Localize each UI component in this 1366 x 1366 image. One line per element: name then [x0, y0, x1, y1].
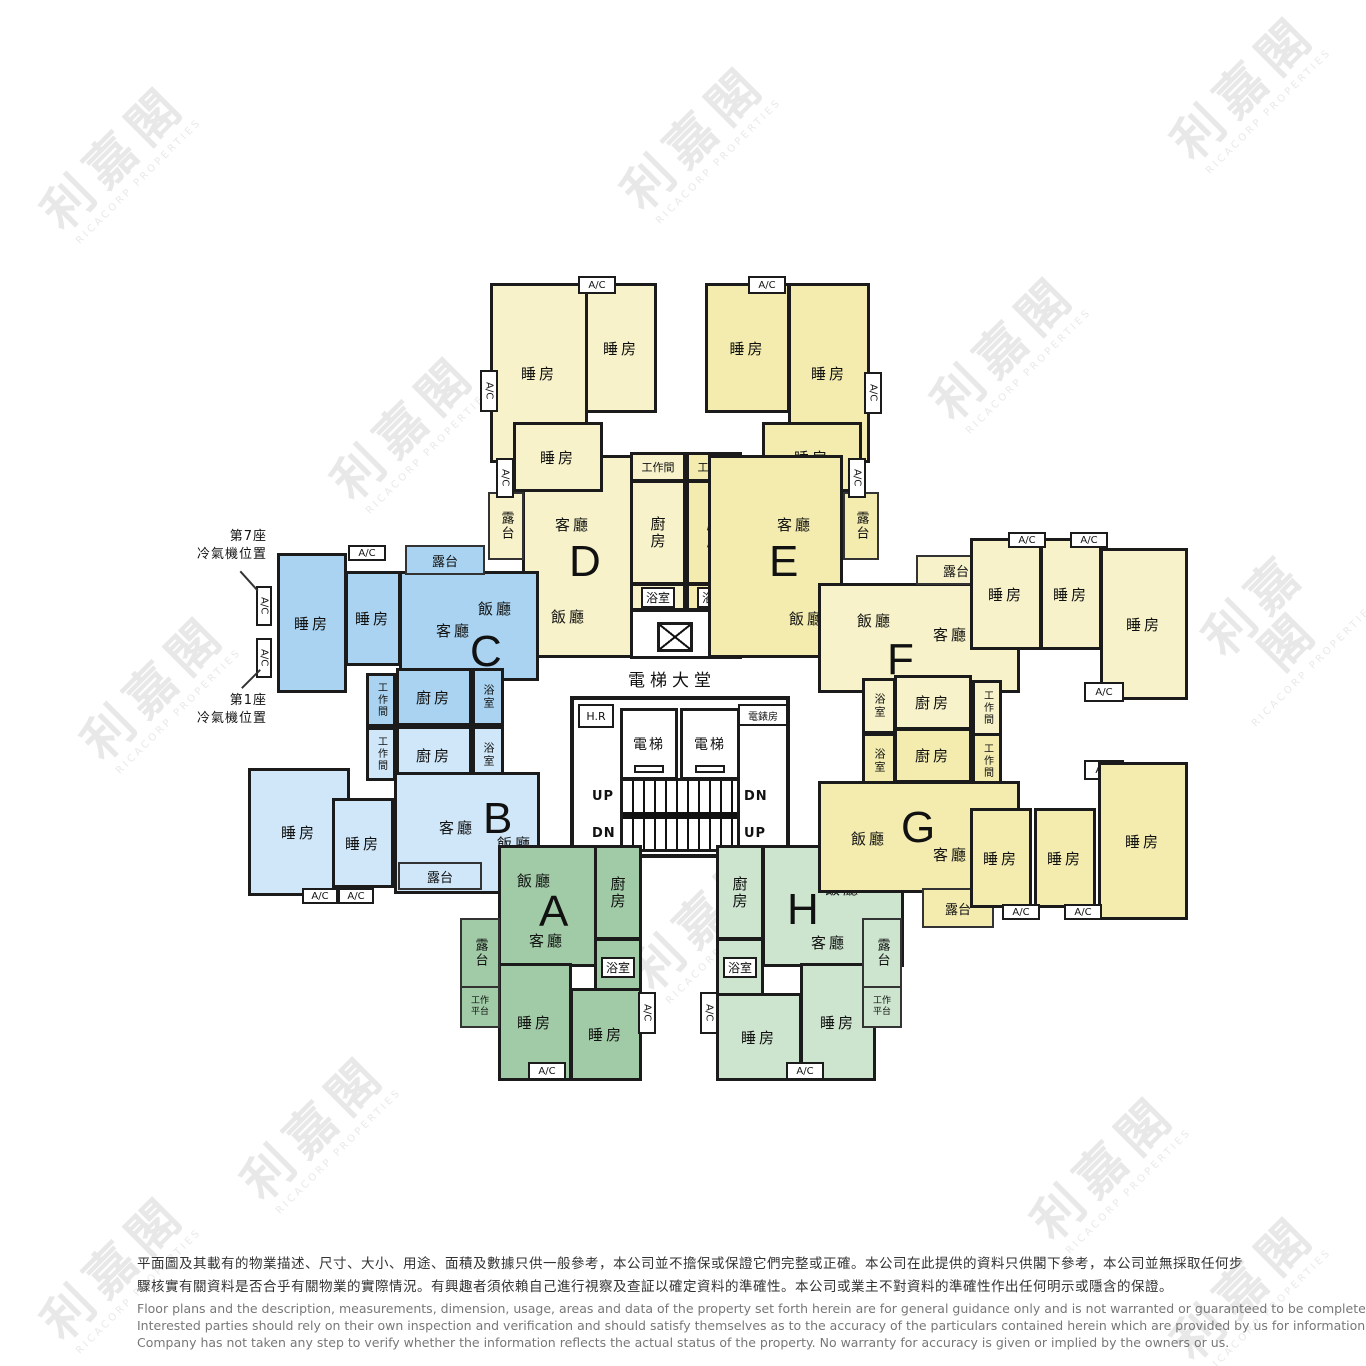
unit-letter-g: G: [901, 806, 935, 850]
lift-1: 電梯: [620, 708, 678, 780]
unit-f-utility: 工作間: [972, 680, 1002, 736]
lift-2: 電梯: [680, 708, 740, 780]
disclaimer-en-line1: Floor plans and the description, measure…: [137, 1301, 1366, 1316]
unit-e-balcony: 露台: [843, 492, 879, 560]
hose-reel-box: H.R: [578, 704, 614, 728]
lift-door: [634, 765, 664, 773]
unit-a-bedroom-2: 睡房: [570, 988, 642, 1081]
ac-box: A/C: [786, 1062, 824, 1080]
tower7-ac-annotation: 第7座 冷氣機位置: [155, 528, 267, 563]
stairs-down-label: DN: [744, 789, 768, 804]
room-label-living: 客廳: [555, 514, 591, 535]
unit-d-bedroom-2: 睡房: [585, 283, 657, 413]
room-label-living: 客廳: [436, 620, 472, 641]
stairs-up-label: UP: [744, 826, 766, 841]
unit-d-bathroom: 浴室: [630, 583, 686, 611]
stairs-down-label: DN: [592, 826, 616, 841]
ac-box: A/C: [1008, 532, 1046, 548]
unit-a-balcony: 露台: [460, 918, 500, 988]
floor-plan-page: 利嘉閣RICACORP PROPERTIES 利嘉閣RICACORP PROPE…: [0, 0, 1366, 1366]
ac-box: A/C: [748, 276, 786, 294]
unit-d-kitchen: 廚房: [630, 480, 686, 585]
unit-c-bedroom-1: 睡房: [277, 553, 347, 693]
meter-room-box: 電錶房: [738, 704, 788, 726]
room-label-dining: 飯廳: [857, 610, 893, 631]
stairs-up-label: UP: [592, 789, 614, 804]
room-label-living: 客廳: [777, 514, 813, 535]
unit-f-kitchen: 廚房: [894, 675, 972, 730]
ac-box: A/C: [480, 370, 498, 412]
room-label-living: 客廳: [439, 817, 475, 838]
ricacorp-logo-watermark: 利嘉閣RICACORP PROPERTIES: [33, 1186, 206, 1359]
ac-box: A/C: [528, 1062, 566, 1080]
room-label-dining: 飯廳: [478, 598, 514, 619]
ricacorp-logo-watermark: 利嘉閣RICACORP PROPERTIES: [33, 76, 206, 249]
ricacorp-logo-watermark: 利嘉閣RICACORP PROPERTIES: [323, 346, 496, 519]
unit-g-kitchen: 廚房: [894, 728, 972, 783]
staircase: [620, 778, 740, 852]
unit-h-bathroom: 浴室: [716, 938, 764, 996]
unit-g-bedroom-1: 睡房: [970, 808, 1032, 908]
stair-landing: [623, 812, 737, 819]
room-label-living: 客廳: [933, 844, 969, 865]
ac-box: A/C: [848, 458, 866, 498]
disclaimer-en-line3: Company has not taken any step to verify…: [137, 1335, 1229, 1350]
unit-f-bathroom: 浴室: [862, 678, 896, 734]
unit-c-balcony: 露台: [405, 545, 485, 575]
unit-c-living-dining: 客廳 飯廳 C: [399, 571, 539, 681]
unit-g-bedroom-3: 睡房: [1098, 762, 1188, 920]
room-label-living: 客廳: [811, 932, 847, 953]
ricacorp-logo-watermark: 利嘉閣RICACORP PROPERTIES: [923, 266, 1096, 439]
unit-b-bedroom-2: 睡房: [332, 798, 394, 888]
room-label-living: 客廳: [529, 930, 565, 951]
unit-g-bedroom-2: 睡房: [1034, 808, 1096, 908]
unit-b-utility: 工作間: [366, 727, 396, 781]
unit-c-utility: 工作間: [366, 673, 396, 727]
unit-f-bedroom-1: 睡房: [970, 538, 1042, 650]
ac-box: A/C: [348, 545, 386, 561]
ac-box: A/C: [1002, 904, 1040, 920]
unit-h-kitchen: 廚房: [716, 845, 764, 940]
ac-box: A/C: [1084, 682, 1124, 702]
unit-h-work-platform: 工作平台: [862, 986, 902, 1028]
ac-box: A/C: [302, 888, 338, 904]
unit-c-bathroom: 浴室: [472, 668, 504, 726]
lift-door: [695, 765, 725, 773]
ac-box: A/C: [638, 992, 656, 1034]
ac-box: A/C: [1070, 532, 1108, 548]
leader-line: [240, 571, 259, 592]
unit-d-bedroom-3: 睡房: [513, 422, 603, 492]
ricacorp-logo-watermark: 利嘉閣RICACORP PROPERTIES: [1163, 6, 1336, 179]
disclaimer-zh-line1: 平面圖及其載有的物業描述、尺寸、大小、用途、面積及數據只供一般參考，本公司並不擔…: [137, 1252, 1243, 1272]
room-label-dining: 飯廳: [851, 828, 887, 849]
unit-letter-d: D: [569, 540, 601, 584]
unit-c-kitchen: 廚房: [396, 668, 472, 726]
leader-line: [241, 669, 261, 689]
disclaimer-zh-line2: 驟核實有關資料是否合乎有關物業的實際情況。有興趣者須依賴自己進行視察及查証以確定…: [137, 1275, 1173, 1295]
ac-box: A/C: [496, 458, 514, 498]
ricacorp-logo-watermark: 利嘉閣RICACORP PROPERTIES: [1023, 1086, 1196, 1259]
ac-box: A/C: [1064, 904, 1102, 920]
unit-d-utility: 工作間: [630, 452, 686, 482]
unit-f-bedroom-3: 睡房: [1100, 548, 1188, 700]
disclaimer-en-line2: Interested parties should rely on their …: [137, 1318, 1366, 1333]
unit-a-kitchen: 廚房: [594, 845, 642, 940]
unit-c-bedroom-2: 睡房: [345, 571, 401, 666]
ac-box: A/C: [864, 372, 882, 414]
ac-box: A/C: [578, 276, 616, 294]
unit-letter-a: A: [539, 890, 568, 934]
ricacorp-logo-watermark: 利嘉閣RICACORP PROPERTIES: [233, 1046, 406, 1219]
ac-box: A/C: [256, 586, 272, 626]
lift-shaft-vent: [657, 622, 693, 652]
unit-letter-e: E: [769, 540, 798, 584]
ac-box: A/C: [338, 888, 374, 904]
unit-e-bedroom-1: 睡房: [705, 283, 790, 413]
room-label-dining: 飯廳: [551, 606, 587, 627]
unit-a-work-platform: 工作平台: [460, 986, 500, 1028]
unit-b-balcony: 露台: [398, 862, 482, 890]
room-label-living: 客廳: [933, 624, 969, 645]
unit-h-balcony: 露台: [862, 918, 902, 988]
unit-f-bedroom-2: 睡房: [1040, 538, 1102, 650]
ac-box: A/C: [700, 992, 718, 1034]
ricacorp-logo-watermark: 利嘉閣RICACORP PROPERTIES: [1175, 525, 1366, 731]
unit-d-balcony: 露台: [488, 492, 524, 560]
unit-letter-h: H: [787, 888, 819, 932]
tower1-ac-annotation: 第1座 冷氣機位置: [155, 692, 267, 727]
lift-lobby-title: 電梯大堂: [628, 666, 716, 691]
ricacorp-logo-watermark: 利嘉閣RICACORP PROPERTIES: [613, 56, 786, 229]
